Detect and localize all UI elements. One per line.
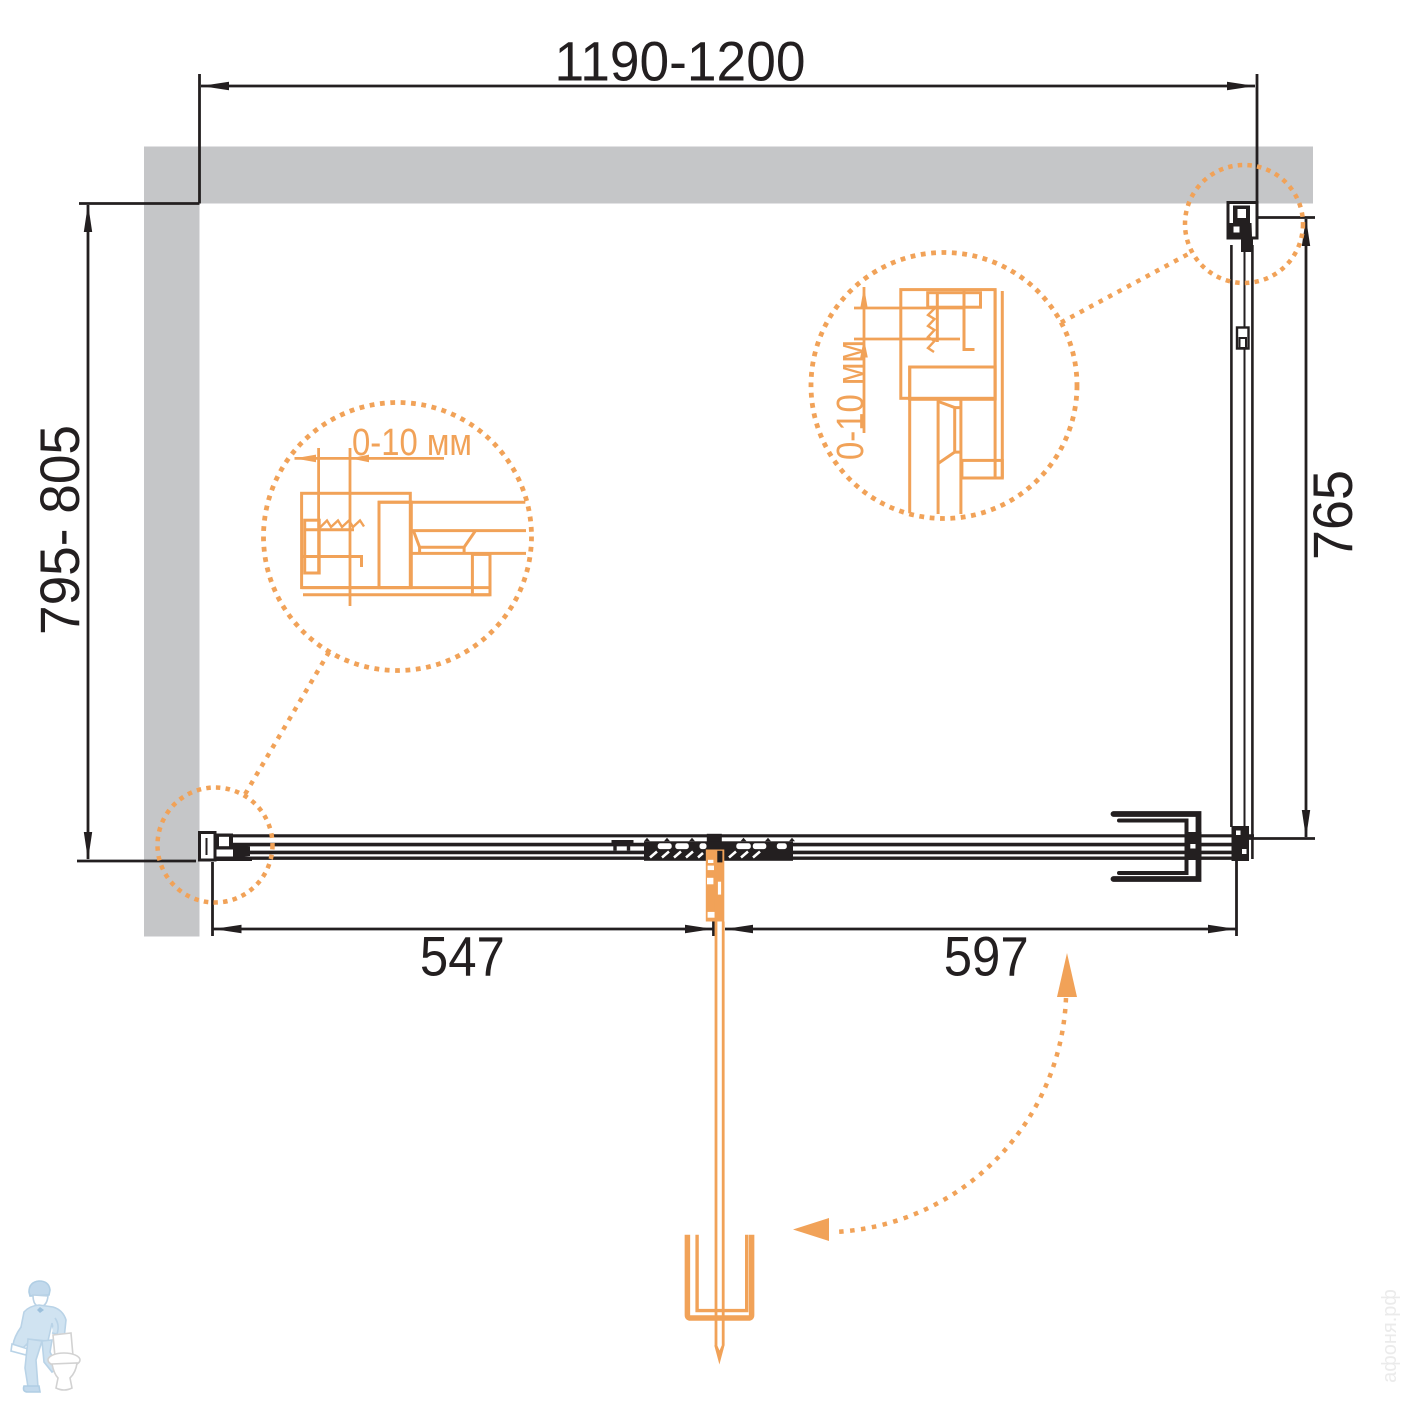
svg-text:0-10 мм: 0-10 мм [352,422,472,464]
svg-text:афоня.рф: афоня.рф [1379,1289,1401,1383]
svg-text:765: 765 [1302,470,1364,560]
svg-text:597: 597 [944,926,1029,988]
svg-text:1190-1200: 1190-1200 [555,31,806,93]
svg-text:547: 547 [420,926,505,988]
svg-text:0-10 мм: 0-10 мм [830,340,872,460]
svg-text:795- 805: 795- 805 [29,425,91,635]
